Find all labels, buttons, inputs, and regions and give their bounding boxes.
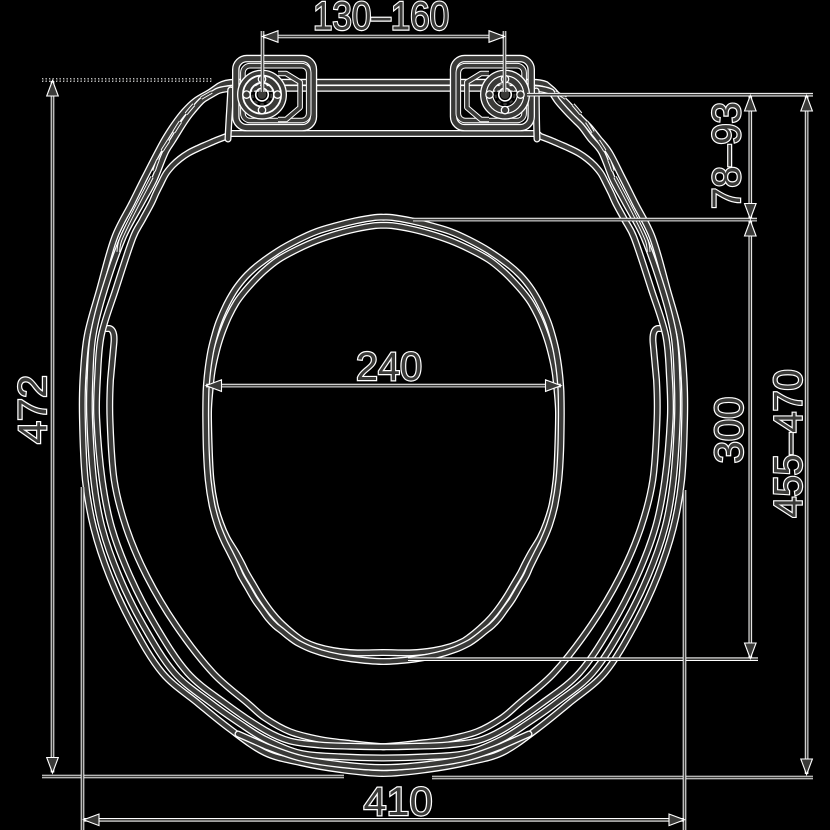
svg-text:240: 240 xyxy=(356,345,422,389)
svg-text:455–470: 455–470 xyxy=(767,369,811,518)
svg-text:130–160: 130–160 xyxy=(313,0,449,39)
svg-text:78–93: 78–93 xyxy=(705,102,749,209)
svg-text:300: 300 xyxy=(708,397,752,464)
svg-text:410: 410 xyxy=(364,780,433,824)
svg-text:472: 472 xyxy=(11,375,55,444)
